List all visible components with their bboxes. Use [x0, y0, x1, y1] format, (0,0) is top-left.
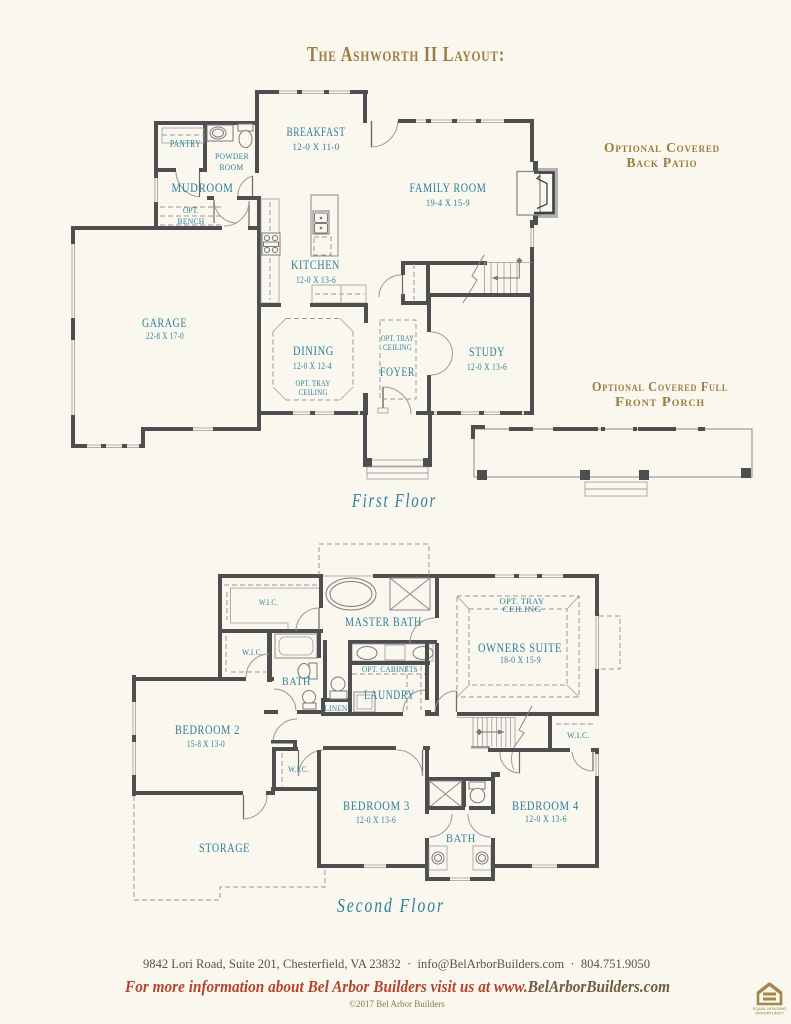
svg-text:ROOM: ROOM	[220, 162, 244, 172]
svg-text:KITCHEN: KITCHEN	[291, 257, 340, 272]
svg-text:19-4 X 15-9: 19-4 X 15-9	[426, 199, 470, 209]
svg-text:LINEN: LINEN	[325, 704, 348, 713]
svg-text:BATH: BATH	[282, 674, 311, 688]
svg-text:MASTER BATH: MASTER BATH	[345, 615, 422, 629]
svg-text:STUDY: STUDY	[469, 344, 505, 359]
svg-text:CEILING: CEILING	[299, 387, 328, 397]
svg-text:The Ashworth II Layout:: The Ashworth II Layout:	[307, 42, 505, 66]
svg-text:CEILING: CEILING	[383, 342, 412, 352]
svg-text:BEDROOM 3: BEDROOM 3	[343, 799, 410, 813]
svg-text:Optional Covered: Optional Covered	[604, 140, 720, 155]
svg-text:BREAKFAST: BREAKFAST	[287, 124, 346, 139]
svg-text:BEDROOM 4: BEDROOM 4	[512, 799, 579, 813]
svg-text:BENCH: BENCH	[178, 216, 205, 226]
svg-text:22-8 X 17-0: 22-8 X 17-0	[146, 332, 184, 342]
svg-text:Second Floor: Second Floor	[337, 895, 445, 917]
svg-text:12-0 X 13-6: 12-0 X 13-6	[467, 363, 507, 373]
svg-text:OPT.: OPT.	[183, 205, 199, 215]
svg-text:POWDER: POWDER	[215, 151, 249, 161]
svg-text:BATH: BATH	[446, 831, 476, 845]
svg-text:12-0 X 11-0: 12-0 X 11-0	[293, 143, 340, 153]
svg-text:12-0 X 13-6: 12-0 X 13-6	[356, 816, 396, 826]
svg-text:CEILING: CEILING	[503, 604, 542, 614]
svg-text:BEDROOM 2: BEDROOM 2	[175, 723, 240, 737]
svg-text:15-8 X 13-0: 15-8 X 13-0	[187, 740, 225, 750]
svg-text:MUDROOM: MUDROOM	[172, 180, 234, 195]
svg-text:W.I.C.: W.I.C.	[288, 764, 309, 774]
svg-text:OPPORTUNITY: OPPORTUNITY	[755, 1011, 784, 1016]
svg-text:Front Porch: Front Porch	[615, 394, 705, 409]
svg-text:9842 Lori Road, Suite 201, Che: 9842 Lori Road, Suite 201, Chesterfield,…	[143, 956, 650, 971]
svg-text:12-0 X 12-4: 12-0 X 12-4	[293, 362, 332, 372]
svg-text:GARAGE: GARAGE	[142, 315, 187, 330]
svg-text:18-0 X 15-9: 18-0 X 15-9	[500, 656, 541, 666]
svg-text:STORAGE: STORAGE	[199, 840, 250, 855]
svg-text:OWNERS SUITE: OWNERS SUITE	[478, 641, 562, 655]
svg-text:FAMILY ROOM: FAMILY ROOM	[410, 180, 487, 195]
svg-text:For more information about Bel: For more information about Bel Arbor Bui…	[124, 977, 670, 996]
svg-text:W.I.C.: W.I.C.	[242, 647, 263, 657]
svg-text:12-0 X 13-6: 12-0 X 13-6	[296, 276, 336, 286]
svg-text:Optional Covered Full: Optional Covered Full	[592, 379, 728, 394]
svg-text:W.I.C.: W.I.C.	[259, 597, 278, 607]
svg-text:PANTRY: PANTRY	[170, 139, 201, 150]
svg-text:OPT. CABINETS: OPT. CABINETS	[362, 664, 418, 674]
svg-text:LAUNDRY: LAUNDRY	[364, 688, 415, 702]
svg-text:©2017 Bel Arbor Builders: ©2017 Bel Arbor Builders	[349, 999, 445, 1009]
svg-text:12-0 X 13-6: 12-0 X 13-6	[525, 815, 567, 825]
svg-text:Back Patio: Back Patio	[627, 155, 698, 170]
svg-text:DINING: DINING	[293, 343, 334, 358]
svg-text:W.I.C.: W.I.C.	[567, 730, 590, 740]
svg-text:First Floor: First Floor	[351, 490, 437, 512]
svg-text:FOYER: FOYER	[380, 364, 415, 379]
